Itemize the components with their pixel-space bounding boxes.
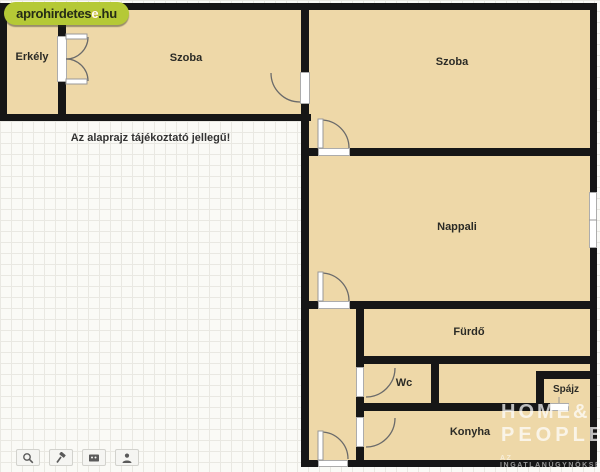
wall-spajz-top bbox=[536, 371, 590, 379]
search-icon bbox=[22, 452, 34, 464]
door-opening-wc bbox=[356, 367, 364, 397]
tool-button[interactable] bbox=[49, 449, 73, 466]
site-logo[interactable]: aprohirdetese.hu bbox=[4, 2, 129, 25]
disclaimer-text: Az alaprajz tájékoztató jellegű! bbox=[58, 132, 243, 144]
door-opening-nappali-hall bbox=[318, 301, 350, 309]
label-szoba-right: Szoba bbox=[414, 56, 490, 68]
label-furdo: Fürdő bbox=[431, 326, 507, 338]
door-opening-konyha bbox=[356, 417, 364, 447]
user-button[interactable] bbox=[115, 449, 139, 466]
label-konyha: Konyha bbox=[432, 426, 508, 438]
wall-leftwing-bottom bbox=[0, 114, 311, 121]
watermark-line2: PEOPLE bbox=[501, 424, 597, 446]
image-button[interactable] bbox=[82, 449, 106, 466]
right-wing-floor bbox=[301, 3, 597, 467]
door-opening-szoba-divider bbox=[300, 72, 310, 104]
hammer-icon bbox=[55, 452, 67, 464]
site-logo-text-main: aprohirdetes bbox=[16, 6, 91, 21]
site-logo-text-tld: .hu bbox=[98, 6, 117, 21]
wall-furdo-bottom bbox=[356, 356, 590, 364]
window-nappali bbox=[589, 192, 597, 248]
label-wc: Wc bbox=[384, 377, 424, 389]
watermark-line1: HOME& bbox=[501, 401, 597, 423]
door-opening-szoba-nappali bbox=[318, 148, 350, 156]
label-szoba-left: Szoba bbox=[148, 52, 224, 64]
image-icon bbox=[88, 452, 100, 464]
watermark-line3: AZ INGATLANÜGYNÖKSÉG bbox=[500, 455, 597, 469]
search-button[interactable] bbox=[16, 449, 40, 466]
label-erkely: Erkély bbox=[8, 51, 56, 63]
label-spajz: Spájz bbox=[541, 384, 591, 396]
door-opening-erkely bbox=[57, 36, 67, 82]
user-icon bbox=[121, 452, 133, 464]
door-opening-entrance bbox=[318, 460, 348, 467]
floorplan-page: Erkély Szoba Szoba Nappali Fürdő Wc Spáj… bbox=[0, 0, 600, 472]
site-logo-text-accent: e bbox=[91, 6, 98, 21]
label-nappali: Nappali bbox=[417, 221, 497, 233]
